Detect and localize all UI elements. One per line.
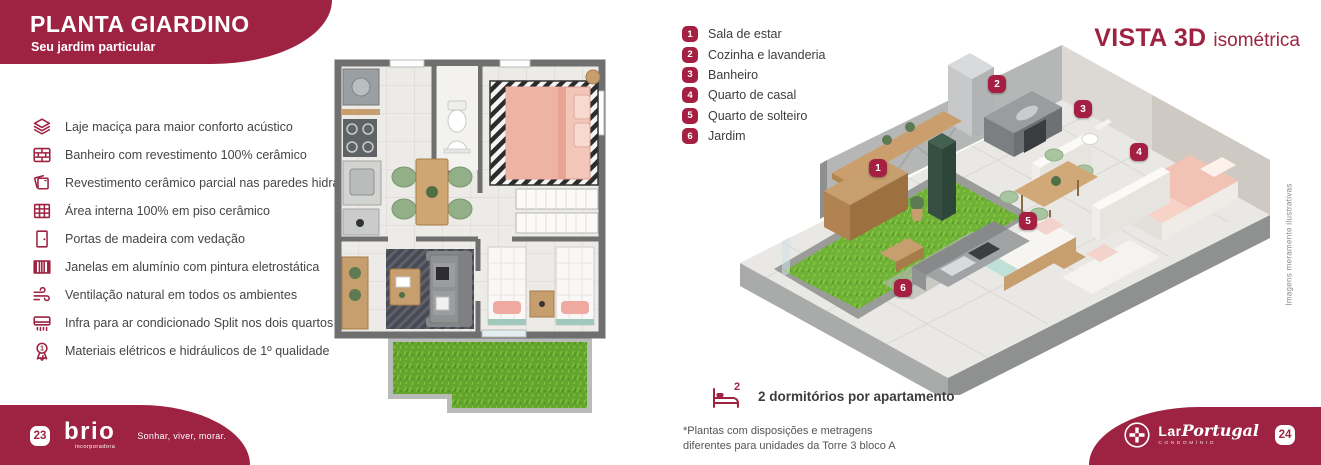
feature-label: Infra para ar condicionado Split nos doi… bbox=[65, 316, 333, 330]
feature-label: Portas de madeira com vedação bbox=[65, 232, 245, 246]
feature-item: Ventilação natural em todos os ambientes bbox=[30, 281, 371, 309]
lar-portugal-logo-lar: Lar bbox=[1158, 423, 1181, 439]
feature-item: Área interna 100% em piso cerâmico bbox=[30, 197, 371, 225]
brio-logo-subtext: incorporadora bbox=[64, 445, 115, 451]
floor-plan-illustration bbox=[330, 57, 610, 422]
plan-kitchen bbox=[342, 69, 381, 235]
feature-label: Laje maciça para maior conforto acústico bbox=[65, 120, 293, 134]
iso-marker: 1 bbox=[869, 159, 887, 177]
floor-plan-2d bbox=[330, 57, 610, 422]
footer-left-banner: 23 brio incorporadora Sonhar, viver, mor… bbox=[0, 405, 250, 465]
feature-item: Banheiro com revestimento 100% cerâmico bbox=[30, 141, 371, 169]
feature-item: Portas de madeira com vedação bbox=[30, 225, 371, 253]
ceramic-tiles-icon bbox=[30, 171, 54, 195]
plan-living bbox=[342, 249, 474, 329]
feature-label: Materiais elétricos e hidráulicos de 1º … bbox=[65, 344, 329, 358]
legend-marker: 4 bbox=[682, 87, 698, 103]
legend-marker: 3 bbox=[682, 67, 698, 83]
medal-number: 1 bbox=[40, 346, 44, 353]
iso-green-panel bbox=[928, 133, 956, 221]
legend-marker: 5 bbox=[682, 108, 698, 124]
lar-portugal-logo: LarPortugal CONDOMÍNIO bbox=[1158, 423, 1259, 447]
page-number-left: 23 bbox=[30, 426, 50, 446]
footnote-line-2: diferentes para unidades da Torre 3 bloc… bbox=[683, 439, 896, 454]
lar-portugal-logo-subtext: CONDOMÍNIO bbox=[1158, 442, 1259, 447]
iso-marker: 2 bbox=[988, 75, 1006, 93]
bed-superscript: 2 bbox=[734, 381, 740, 393]
plan-garden bbox=[388, 337, 592, 413]
header-banner: PLANTA GIARDINO Seu jardim particular bbox=[0, 0, 332, 64]
feature-label: Banheiro com revestimento 100% cerâmico bbox=[65, 148, 307, 162]
footnote-line-1: *Plantas com disposições e metragens bbox=[683, 424, 896, 439]
vista-3d-subtitle: isométrica bbox=[1213, 30, 1300, 51]
plan-bathroom bbox=[437, 66, 478, 170]
features-list: Laje maciça para maior conforto acústico… bbox=[30, 113, 371, 365]
disclaimer-vertical: Imagens meramente ilustrativas bbox=[1285, 170, 1294, 320]
air-conditioner-icon bbox=[30, 311, 54, 335]
brand-tagline: Sonhar, viver, morar. bbox=[137, 431, 226, 441]
vista-3d-title: VISTA 3D bbox=[1094, 24, 1206, 52]
feature-label: Janelas em alumínio com pintura eletrost… bbox=[65, 260, 319, 274]
page-number-right: 24 bbox=[1275, 425, 1295, 445]
view-3d-isometric: 1 2 3 4 5 6 bbox=[732, 45, 1277, 395]
iso-marker: 6 bbox=[894, 279, 912, 297]
feature-item: Revestimento cerâmico parcial nas parede… bbox=[30, 169, 371, 197]
feature-label: Área interna 100% em piso cerâmico bbox=[65, 204, 270, 218]
feature-item: Infra para ar condicionado Split nos doi… bbox=[30, 309, 371, 337]
iso-marker: 3 bbox=[1074, 100, 1092, 118]
first-quality-medal-icon: 1 bbox=[30, 339, 54, 363]
legend-item: 1 Sala de estar bbox=[682, 24, 825, 44]
feature-label: Revestimento cerâmico parcial nas parede… bbox=[65, 176, 371, 190]
iso-marker: 4 bbox=[1130, 143, 1148, 161]
iso-illustration bbox=[732, 45, 1277, 395]
legend-label: Sala de estar bbox=[708, 27, 782, 41]
dorm-count-label: 2 dormitórios por apartamento bbox=[758, 389, 955, 404]
feature-label: Ventilação natural em todos os ambientes bbox=[65, 288, 297, 302]
iso-marker: 5 bbox=[1019, 212, 1037, 230]
feature-item: Janelas em alumínio com pintura eletrost… bbox=[30, 253, 371, 281]
window-icon bbox=[30, 255, 54, 279]
brick-wall-icon bbox=[30, 143, 54, 167]
door-icon bbox=[30, 227, 54, 251]
bed-icon: 2 bbox=[710, 381, 746, 411]
legend-marker: 1 bbox=[682, 26, 698, 42]
feature-item: Laje maciça para maior conforto acústico bbox=[30, 113, 371, 141]
brio-logo: brio incorporadora bbox=[64, 420, 115, 451]
slab-layers-icon bbox=[30, 115, 54, 139]
lar-portugal-logo-portugal: Portugal bbox=[1182, 421, 1259, 440]
vista-3d-heading: VISTA 3Disométrica bbox=[1094, 24, 1300, 53]
brio-logo-text: brio bbox=[64, 420, 115, 444]
feature-item: 1 Materiais elétricos e hidráulicos de 1… bbox=[30, 337, 371, 365]
floor-grid-icon bbox=[30, 199, 54, 223]
legend-marker: 6 bbox=[682, 128, 698, 144]
legend-marker: 2 bbox=[682, 47, 698, 63]
lar-portugal-emblem-icon bbox=[1124, 422, 1150, 448]
dorm-count-row: 2 2 dormitórios por apartamento bbox=[710, 381, 955, 411]
footer-right-banner: LarPortugal CONDOMÍNIO 24 bbox=[1089, 407, 1321, 465]
page-title: PLANTA GIARDINO bbox=[30, 11, 250, 38]
wind-icon bbox=[30, 283, 54, 307]
page-subtitle: Seu jardim particular bbox=[31, 40, 155, 54]
plan-footnote: *Plantas com disposições e metragens dif… bbox=[683, 424, 896, 455]
